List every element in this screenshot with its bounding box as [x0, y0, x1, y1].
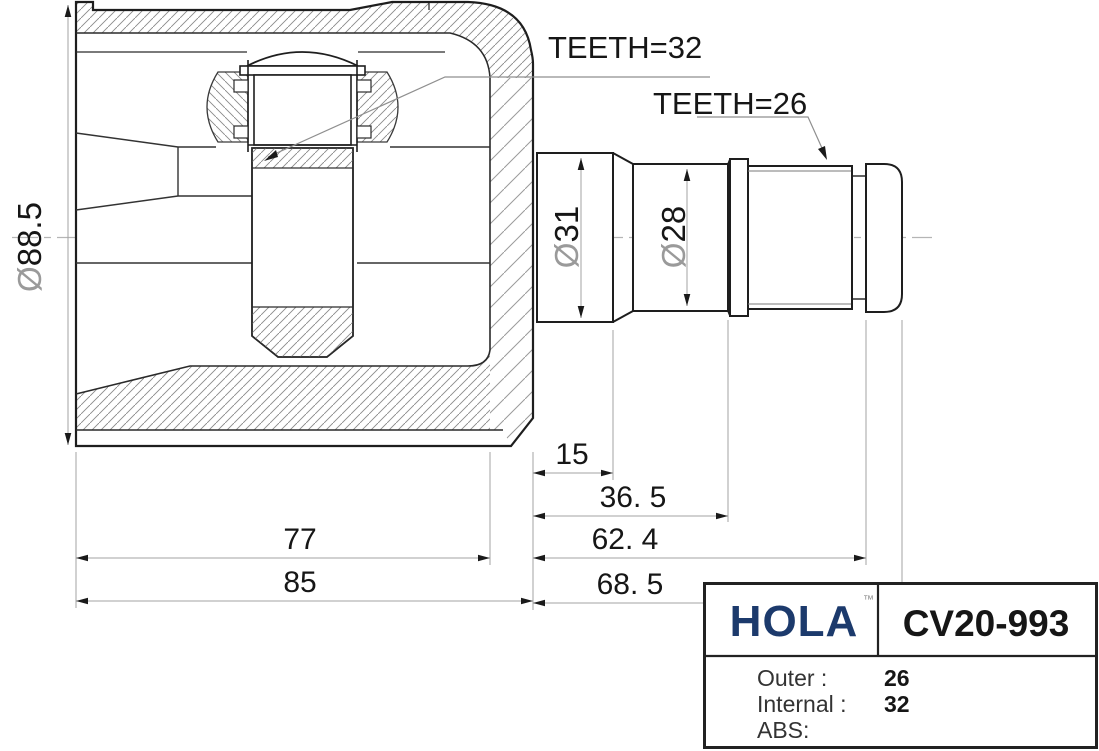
dim-85-label: 85: [283, 566, 316, 599]
teeth-32-label: TEETH=32: [548, 30, 702, 65]
spec-label-outer: Outer :: [757, 665, 827, 691]
shaft-stop-ring: [730, 159, 748, 316]
inner-spline-shaft: [252, 148, 353, 357]
spec-value-outer: 26: [884, 665, 910, 691]
teeth26-leader: [697, 117, 826, 157]
brand-trademark: ™: [863, 594, 874, 606]
shaft-taper-bottom: [613, 311, 633, 322]
output-shaft: [537, 153, 902, 322]
brand-logo: HOLA: [730, 597, 859, 646]
dia-28-value: 28: [655, 206, 692, 243]
cv-joint-drawing: TEETH=32 TEETH=26 15 36. 5 62. 4 68. 5 7…: [0, 0, 1099, 751]
teeth26-leader-arrow: [818, 146, 827, 160]
dia-885-label: Ø88.5: [11, 202, 48, 292]
dim-77-label: 77: [283, 523, 316, 556]
dim-15-label: 15: [555, 438, 588, 471]
spec-label-internal: Internal :: [757, 691, 847, 717]
dia-31-value: 31: [548, 206, 585, 243]
title-block: HOLA ™ CV20-993 Outer : 26 Internal : 32…: [705, 584, 1097, 748]
dia-885-value: 88.5: [11, 202, 48, 266]
spec-label-abs: ABS:: [757, 717, 809, 743]
shaft-end-cap: [866, 164, 902, 312]
teeth-26-label: TEETH=26: [653, 86, 807, 121]
dia-28-symbol: Ø: [655, 243, 692, 269]
shaft-spline-section: [748, 166, 852, 309]
dia-31-symbol: Ø: [548, 243, 585, 269]
dia-28-label: Ø28: [655, 206, 692, 268]
technical-drawing-page: TEETH=32 TEETH=26 15 36. 5 62. 4 68. 5 7…: [0, 0, 1099, 751]
cage-clip-top-left: [234, 80, 248, 92]
dim-68-5-label: 68. 5: [597, 568, 664, 601]
cage-clip-bottom-left: [234, 126, 248, 138]
part-number: CV20-993: [903, 603, 1070, 644]
cage-clip-top-right: [357, 80, 371, 92]
bearing-cage-body: [254, 75, 351, 145]
dim-62-4-label: 62. 4: [592, 523, 659, 556]
dim-36-5-label: 36. 5: [600, 481, 667, 514]
housing-right-wall-hatch: [490, 78, 533, 446]
dia-31-label: Ø31: [548, 206, 585, 268]
shaft-taper-top: [613, 153, 633, 164]
dia-885-symbol: Ø: [11, 266, 48, 292]
spec-value-internal: 32: [884, 691, 910, 717]
bearing-retainer-band: [240, 66, 365, 75]
inner-shaft-spline-hatch-top: [252, 148, 353, 168]
cage-clip-bottom-right: [357, 126, 371, 138]
